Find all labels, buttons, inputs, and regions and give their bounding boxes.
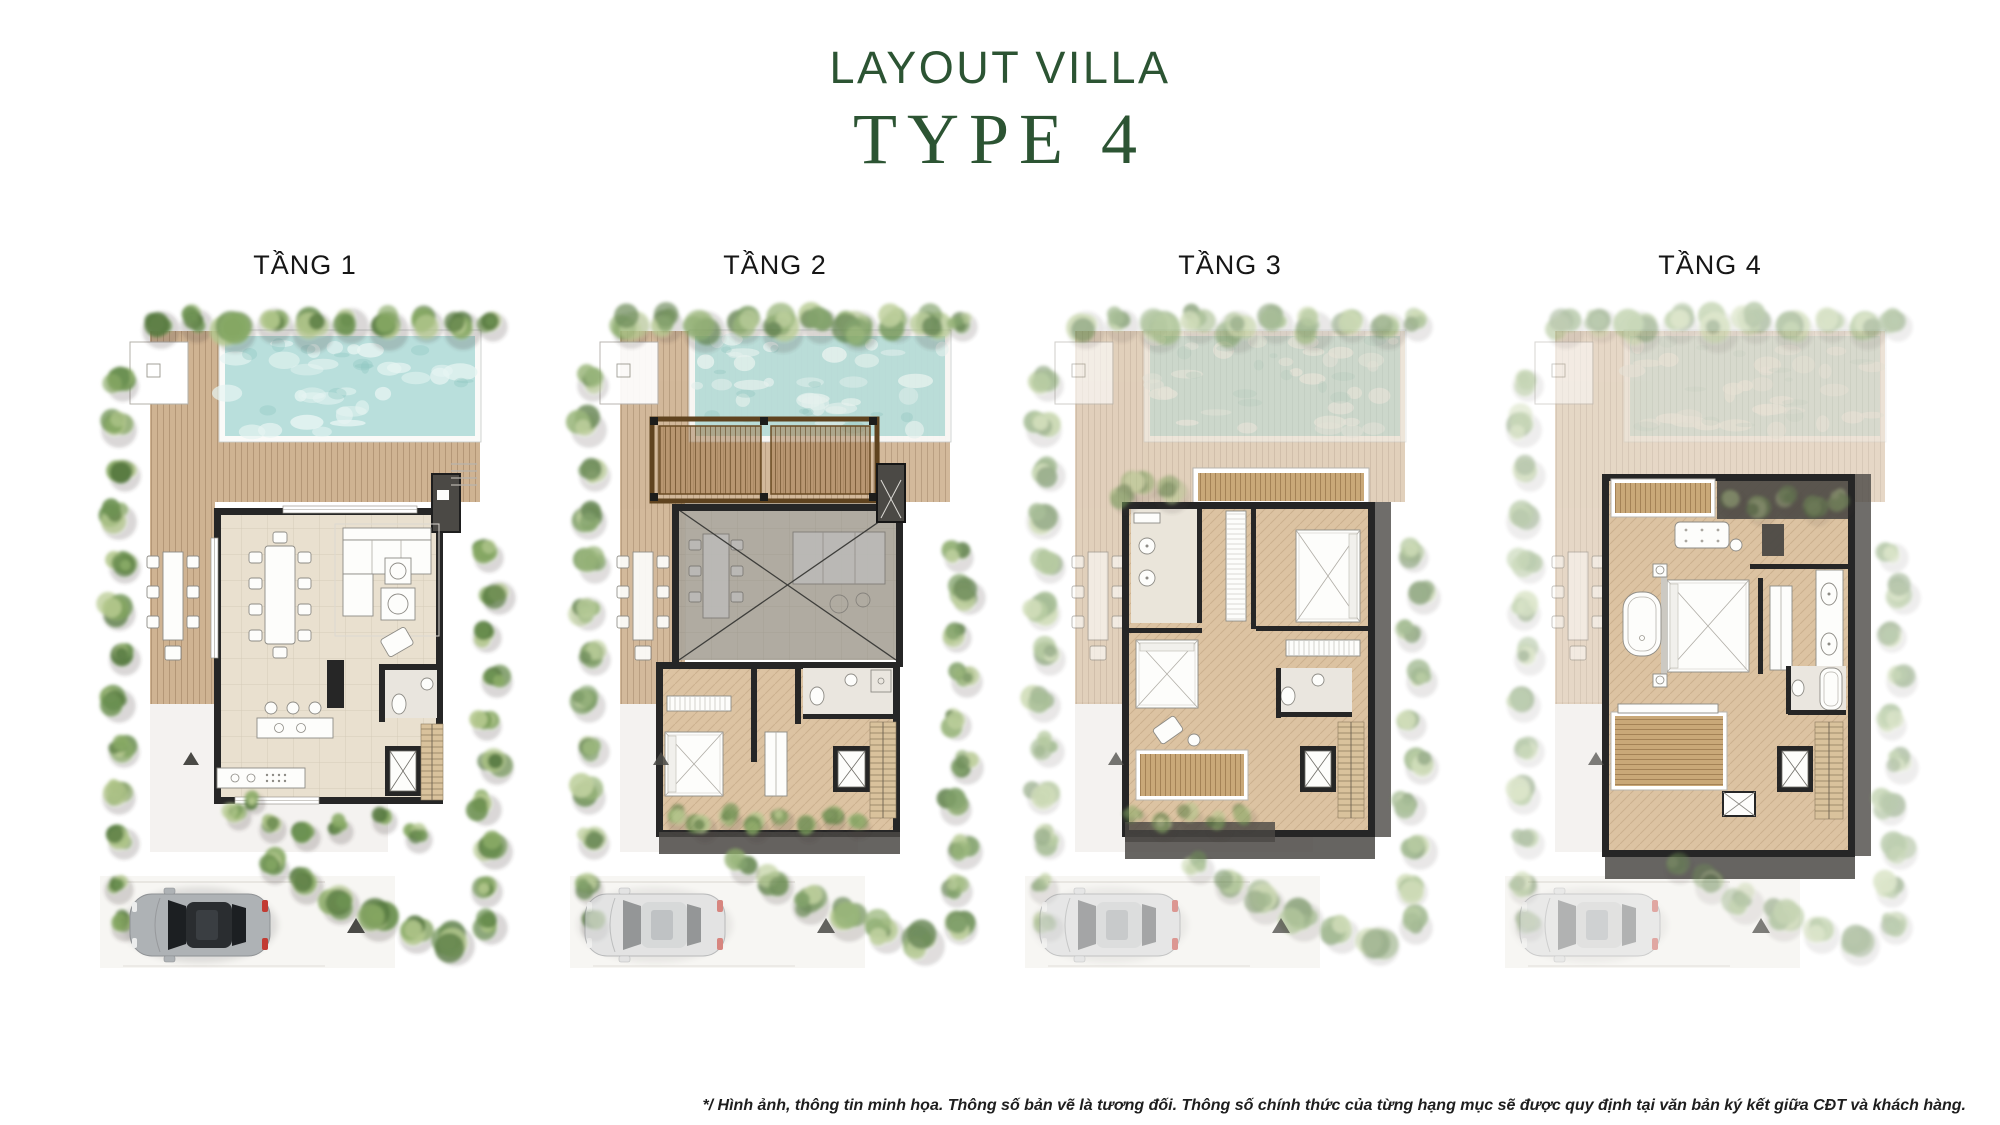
floor-1-section: TẦNG 1 bbox=[85, 250, 525, 1014]
entry-gate-room bbox=[1535, 342, 1593, 404]
staircase bbox=[1815, 722, 1843, 819]
entry-gate-room bbox=[1055, 342, 1113, 404]
cabinet bbox=[1286, 640, 1360, 656]
floor-plan-svg bbox=[555, 294, 995, 1014]
bed bbox=[1136, 640, 1198, 708]
entry-canopy bbox=[432, 474, 460, 532]
floor-2-section: TẦNG 2 bbox=[555, 250, 995, 1014]
floor-plan-3 bbox=[1010, 294, 1450, 1014]
elevator bbox=[1777, 746, 1813, 792]
staircase bbox=[421, 724, 443, 800]
bathtub bbox=[1623, 592, 1661, 656]
wardrobe bbox=[765, 732, 787, 796]
floor-plan-4 bbox=[1490, 294, 1930, 1014]
floor-4-label: TẦNG 4 bbox=[1490, 250, 1930, 281]
skylight bbox=[1723, 792, 1755, 816]
building bbox=[1602, 474, 1871, 879]
floor-4-section: TẦNG 4 bbox=[1490, 250, 1930, 1014]
page-footer: */ Hình ảnh, thông tin minh họa. Thông s… bbox=[702, 1097, 1966, 1115]
page-subtitle: TYPE 4 bbox=[0, 98, 2000, 181]
balcony bbox=[1136, 750, 1248, 800]
swimming-pool bbox=[689, 330, 951, 442]
brochure-page: LAYOUT VILLA TYPE 4 TẦNG 1 bbox=[0, 0, 2000, 1125]
vanity bbox=[1816, 570, 1843, 668]
floor-plan-svg bbox=[1010, 294, 1450, 1014]
bed bbox=[1296, 530, 1360, 622]
balcony bbox=[1193, 468, 1369, 506]
floor-plan-2 bbox=[555, 294, 995, 1014]
building bbox=[1122, 468, 1391, 859]
floor-plan-svg bbox=[85, 294, 525, 1014]
car bbox=[577, 887, 733, 963]
floor-plan-1 bbox=[85, 294, 525, 1014]
disclaimer-text: */ Hình ảnh, thông tin minh họa. Thông s… bbox=[702, 1097, 1966, 1115]
wardrobe bbox=[1226, 511, 1246, 621]
car bbox=[1512, 887, 1668, 963]
balcony bbox=[1611, 479, 1715, 517]
elevator bbox=[833, 746, 870, 792]
floor-2-label: TẦNG 2 bbox=[555, 250, 995, 281]
elevator bbox=[1300, 746, 1336, 792]
wardrobe bbox=[1770, 586, 1792, 670]
car bbox=[122, 887, 278, 963]
entry-gate-room bbox=[600, 342, 658, 404]
bed bbox=[665, 732, 723, 796]
bed bbox=[1667, 580, 1749, 672]
car bbox=[1032, 887, 1188, 963]
elevator bbox=[385, 746, 421, 796]
staircase bbox=[1338, 722, 1364, 818]
building bbox=[211, 464, 477, 804]
swimming-pool bbox=[1619, 330, 1886, 442]
building bbox=[650, 417, 905, 854]
page-header: LAYOUT VILLA TYPE 4 bbox=[0, 42, 2000, 181]
swimming-pool bbox=[212, 330, 481, 442]
page-title: LAYOUT VILLA bbox=[0, 42, 2000, 94]
staircase bbox=[870, 722, 896, 818]
wardrobe bbox=[667, 696, 731, 711]
entry-gate-room bbox=[130, 342, 188, 404]
floor-3-label: TẦNG 3 bbox=[1010, 250, 1450, 281]
balcony bbox=[1611, 704, 1727, 790]
floor-plan-svg bbox=[1490, 294, 1930, 1014]
nightstand bbox=[1653, 674, 1667, 687]
swimming-pool bbox=[1142, 330, 1406, 442]
nightstand bbox=[1653, 564, 1667, 577]
floor-3-section: TẦNG 3 bbox=[1010, 250, 1450, 1014]
elevator-shaft bbox=[877, 464, 905, 522]
floor-1-label: TẦNG 1 bbox=[85, 250, 525, 281]
